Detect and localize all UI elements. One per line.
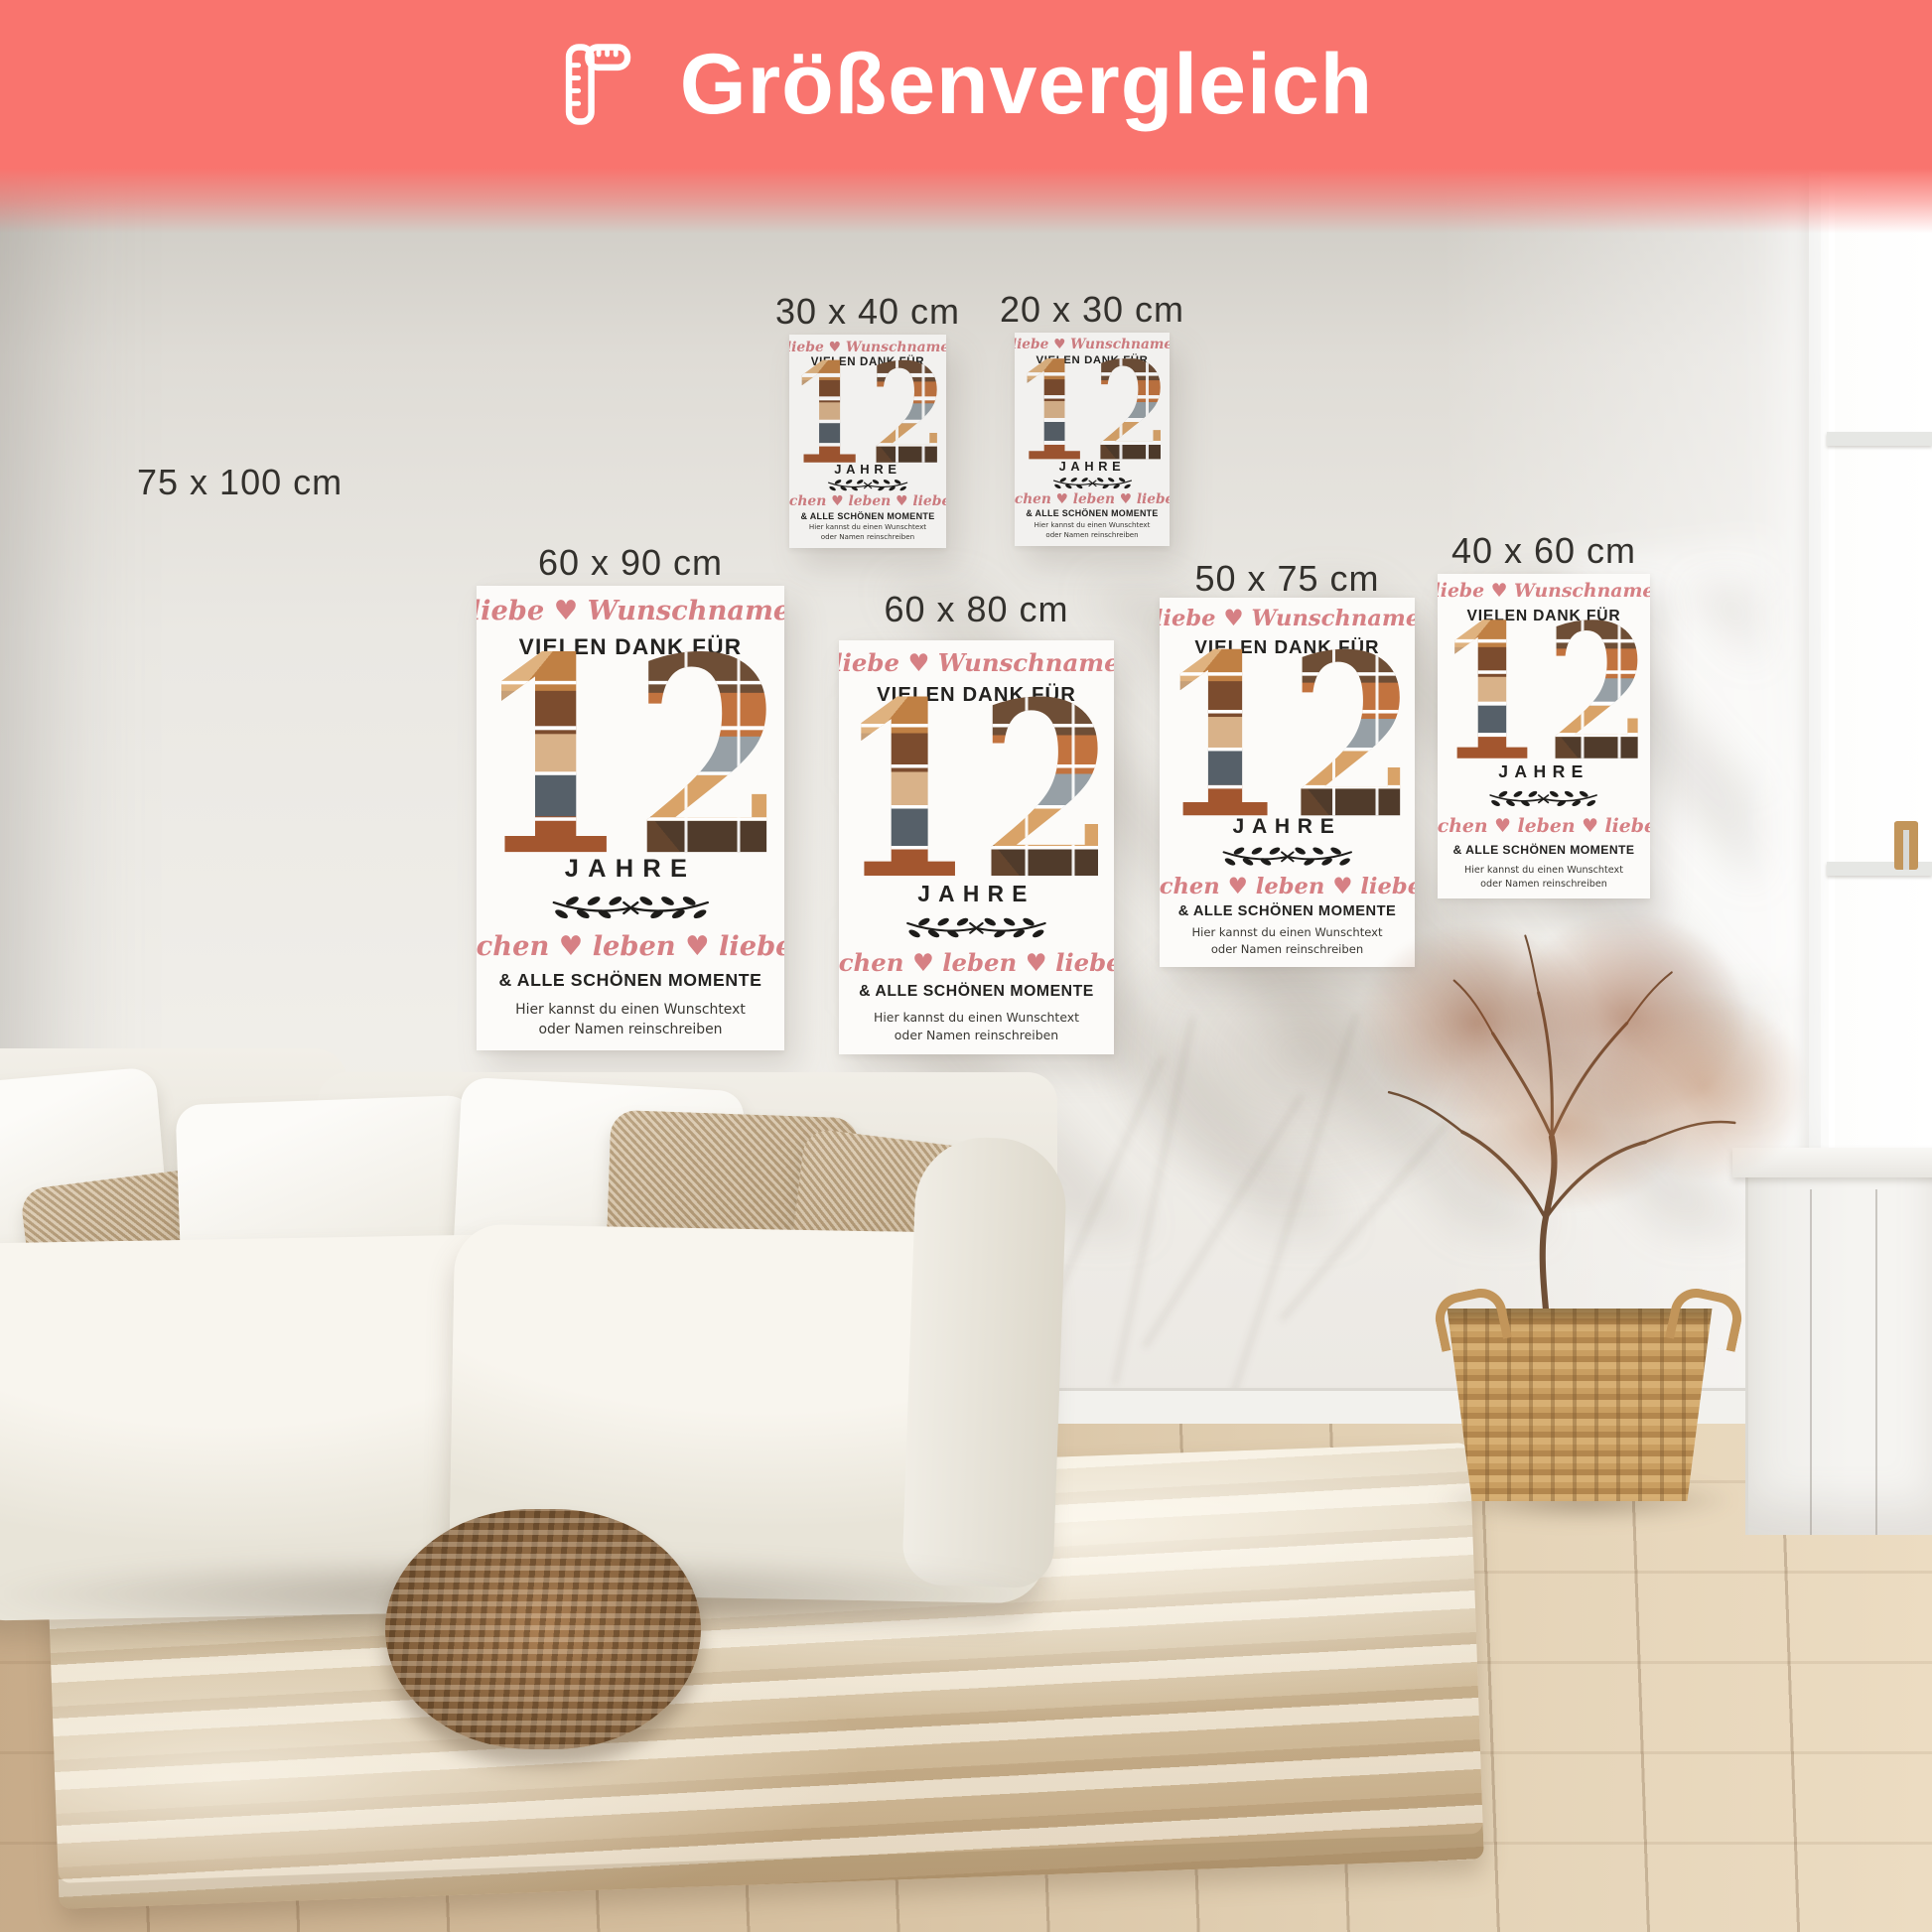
- size-label: 30 x 40 cm: [775, 291, 960, 333]
- size-label: 60 x 80 cm: [884, 589, 1068, 630]
- poster-mockup: 60 x 90 cm liebe ♥ Wunschname VIELEN DAN…: [477, 586, 784, 1050]
- poster-hint-text: Hier kannst du einen Wunschtext oder Nam…: [515, 1000, 746, 1039]
- poster-number-collage: 12: [1438, 619, 1650, 767]
- poster-motto-line: lachen ♥ leben ♥ lieben: [789, 494, 946, 509]
- photo-collage-poster: liebe ♥ Wunschname VIELEN DANK FÜR 12 JA…: [789, 335, 946, 548]
- poster-hint-text: Hier kannst du einen Wunschtext oder Nam…: [1464, 864, 1623, 892]
- digit-one-photo-collage: 1: [839, 697, 975, 891]
- digit-two-photo-collage: 2: [1093, 358, 1170, 468]
- photo-collage-poster: liebe ♥ Wunschname VIELEN DANK FÜR 12 JA…: [1160, 598, 1415, 967]
- photo-collage-poster: liebe ♥ Wunschname VIELEN DANK FÜR 12 JA…: [839, 640, 1114, 1054]
- poster-motto-line: lachen ♥ leben ♥ lieben: [477, 932, 784, 961]
- digit-two-photo-collage: 2: [869, 359, 946, 470]
- size-label: 20 x 30 cm: [1000, 289, 1184, 331]
- poster-moments-line: & ALLE SCHÖNEN MOMENTE: [1453, 843, 1635, 857]
- banner-title: Größenvergleich: [680, 36, 1373, 134]
- size-comparison-banner: Größenvergleich: [0, 0, 1932, 233]
- poster-motto-line: lachen ♥ leben ♥ lieben: [1015, 492, 1170, 507]
- poster-mockup: 50 x 75 cm liebe ♥ Wunschname VIELEN DAN…: [1160, 598, 1415, 967]
- poster-hint-text: Hier kannst du einen Wunschtext oder Nam…: [809, 522, 926, 543]
- poster-number-collage: 12: [1015, 358, 1170, 468]
- poster-number-collage: 12: [789, 359, 946, 470]
- poster-motto-line: lachen ♥ leben ♥ lieben: [1438, 816, 1650, 836]
- digit-one-photo-collage: 1: [1438, 619, 1543, 767]
- poster-motto-line: lachen ♥ leben ♥ lieben: [1160, 875, 1415, 898]
- photo-collage-poster: liebe ♥ Wunschname VIELEN DANK FÜR 12 JA…: [1015, 333, 1170, 546]
- digit-two-photo-collage: 2: [632, 649, 784, 866]
- poster-mockup: 20 x 30 cm liebe ♥ Wunschname VIELEN DAN…: [1015, 333, 1170, 546]
- poster-mockup: 30 x 40 cm liebe ♥ Wunschname VIELEN DAN…: [789, 335, 946, 548]
- size-label: 50 x 75 cm: [1194, 558, 1379, 600]
- poster-moments-line: & ALLE SCHÖNEN MOMENTE: [1026, 508, 1158, 518]
- digit-one-photo-collage: 1: [1015, 358, 1091, 468]
- poster-hint-text: Hier kannst du einen Wunschtext oder Nam…: [874, 1009, 1079, 1044]
- photo-collage-poster: liebe ♥ Wunschname VIELEN DANK FÜR 12 JA…: [1438, 574, 1650, 898]
- size-label: 40 x 60 cm: [1451, 530, 1636, 572]
- size-label: 60 x 90 cm: [538, 542, 723, 584]
- digit-two-photo-collage: 2: [1545, 619, 1650, 767]
- photo-collage-poster: liebe ♥ Wunschname VIELEN DANK FÜR 12 JA…: [477, 586, 784, 1050]
- dried-bloom-cluster: [1438, 1042, 1686, 1211]
- poster-mockup: 40 x 60 cm liebe ♥ Wunschname VIELEN DAN…: [1438, 574, 1650, 898]
- poster-moments-line: & ALLE SCHÖNEN MOMENTE: [800, 511, 934, 521]
- poster-number-collage: 12: [839, 697, 1114, 891]
- digit-two-photo-collage: 2: [1289, 646, 1415, 826]
- poster-hint-text: Hier kannst du einen Wunschtext oder Nam…: [1035, 520, 1151, 540]
- digit-one-photo-collage: 1: [789, 359, 867, 470]
- digit-one-photo-collage: 1: [1160, 646, 1286, 826]
- poster-motto-line: lachen ♥ leben ♥ lieben: [839, 950, 1114, 976]
- folding-ruler-icon: [559, 40, 636, 129]
- wicker-pouf: [385, 1509, 701, 1749]
- poster-number-collage: 12: [477, 649, 784, 866]
- poster-number-collage: 12: [1160, 646, 1415, 826]
- size-label: 75 x 100 cm: [137, 462, 343, 503]
- size-comparison-scene: 75 x 100 cm 30 x 40 cm liebe ♥ Wunschnam…: [0, 0, 1932, 1932]
- digit-one-photo-collage: 1: [477, 649, 628, 866]
- poster-moments-line: & ALLE SCHÖNEN MOMENTE: [859, 983, 1094, 1001]
- poster-moments-line: & ALLE SCHÖNEN MOMENTE: [498, 970, 761, 991]
- digit-two-photo-collage: 2: [978, 697, 1114, 891]
- poster-mockup: 60 x 80 cm liebe ♥ Wunschname VIELEN DAN…: [839, 640, 1114, 1054]
